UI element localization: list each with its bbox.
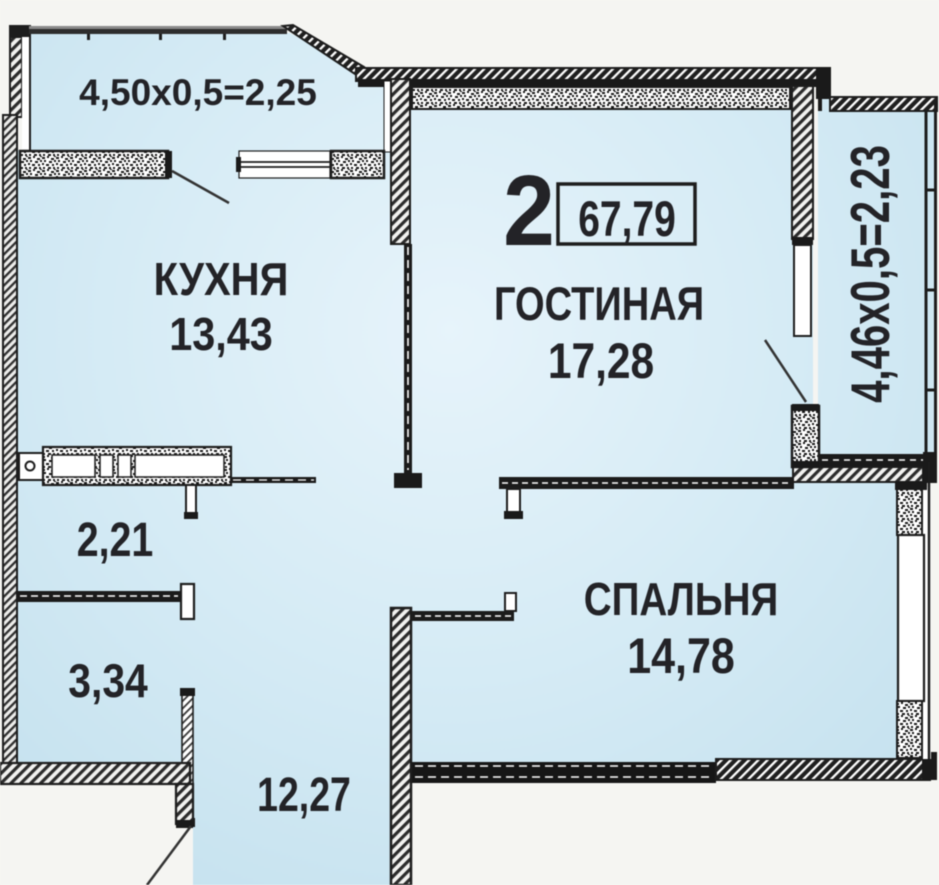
svg-text:17,28: 17,28 [548,333,654,389]
svg-text:2: 2 [503,156,555,267]
svg-text:3,34: 3,34 [68,655,148,707]
svg-text:67,79: 67,79 [578,190,676,247]
svg-text:ГОСТИНАЯ: ГОСТИНАЯ [494,278,704,331]
svg-text:13,43: 13,43 [169,309,273,361]
svg-text:4,50x0,5=2,25: 4,50x0,5=2,25 [79,72,317,113]
svg-text:СПАЛЬНЯ: СПАЛЬНЯ [584,574,779,625]
svg-text:12,27: 12,27 [257,769,351,823]
svg-text:4,46x0,5=2,23: 4,46x0,5=2,23 [840,145,902,403]
svg-text:КУХНЯ: КУХНЯ [154,254,289,305]
svg-text:14,78: 14,78 [627,628,735,684]
svg-text:2,21: 2,21 [77,513,154,567]
